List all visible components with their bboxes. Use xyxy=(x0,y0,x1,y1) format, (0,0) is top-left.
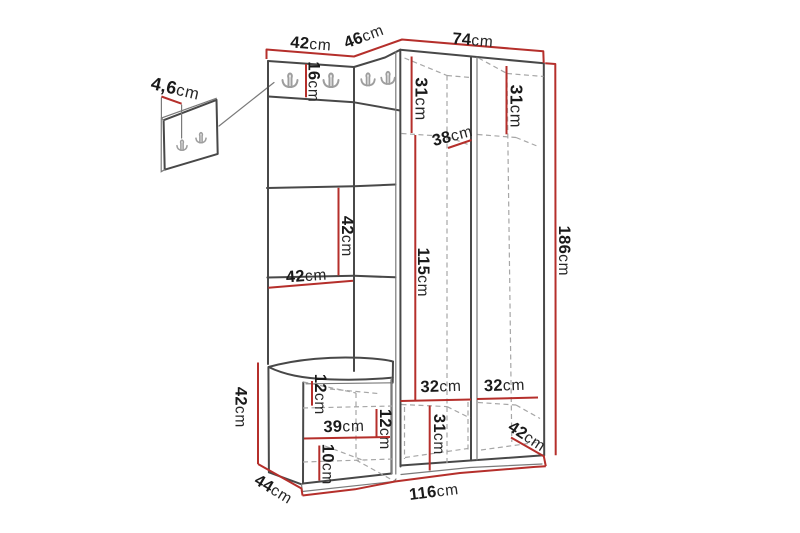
svg-text:186cm: 186cm xyxy=(555,226,573,277)
svg-text:31cm: 31cm xyxy=(430,414,448,455)
svg-text:42cm: 42cm xyxy=(338,216,356,257)
svg-text:31cm: 31cm xyxy=(506,85,526,129)
svg-text:39cm: 39cm xyxy=(323,417,365,436)
svg-text:74cm: 74cm xyxy=(452,30,495,51)
svg-text:115cm: 115cm xyxy=(414,248,432,298)
svg-text:32cm: 32cm xyxy=(484,376,526,395)
svg-text:42cm: 42cm xyxy=(285,266,327,287)
svg-text:12cm: 12cm xyxy=(311,374,329,415)
svg-text:12cm: 12cm xyxy=(376,409,394,450)
svg-text:42cm: 42cm xyxy=(232,387,250,428)
svg-text:16cm: 16cm xyxy=(305,61,323,102)
svg-text:42cm: 42cm xyxy=(290,33,333,54)
svg-text:10cm: 10cm xyxy=(319,444,337,485)
svg-text:31cm: 31cm xyxy=(412,77,432,121)
svg-text:32cm: 32cm xyxy=(420,377,462,396)
